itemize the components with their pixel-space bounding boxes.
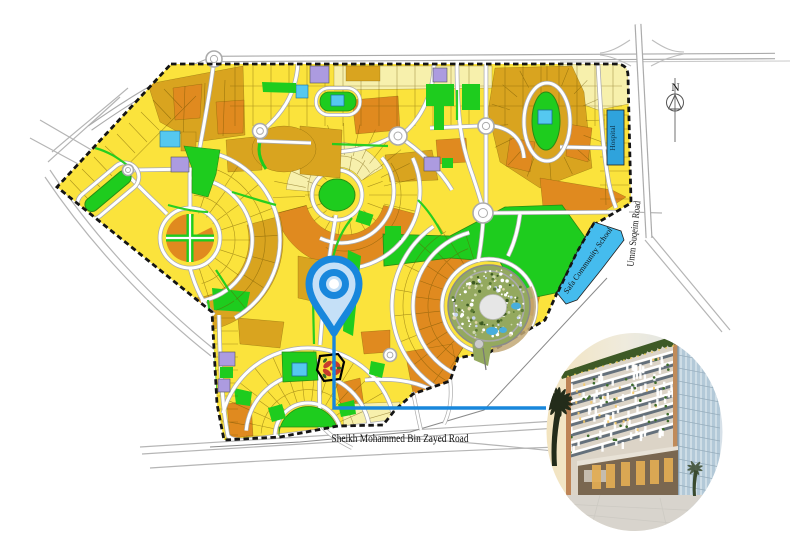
svg-text:N: N bbox=[671, 82, 680, 94]
svg-text:Hospital: Hospital bbox=[608, 125, 617, 150]
svg-text:Sheikh Mohammed Bin Zayed Road: Sheikh Mohammed Bin Zayed Road bbox=[332, 431, 469, 445]
